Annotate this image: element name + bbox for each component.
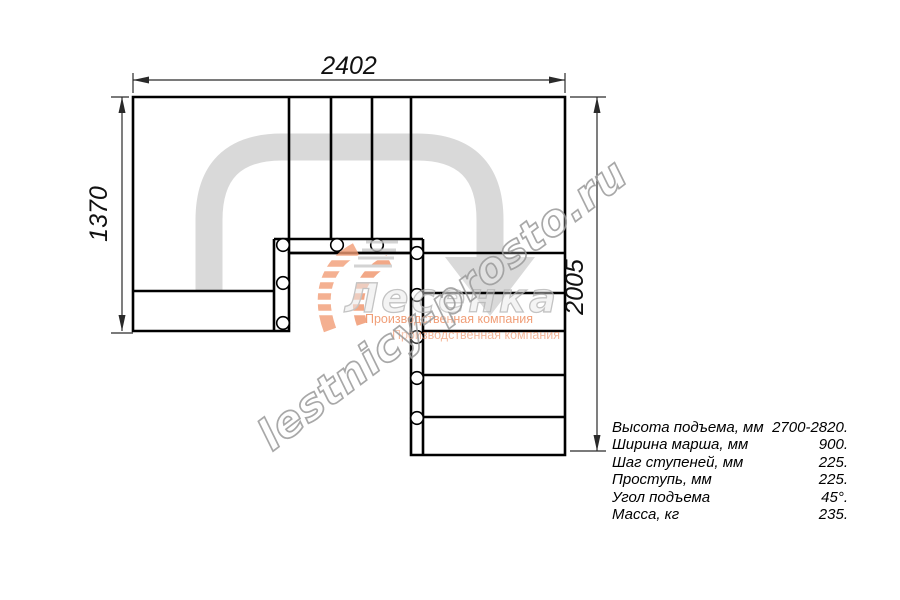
dim-arrow-down-icon (594, 435, 601, 451)
spec-value: 235. (819, 506, 848, 523)
spec-label: Шаг ступеней, мм (612, 454, 743, 471)
dimension-top: 2402 (133, 52, 565, 93)
dim-arrow-up-icon (594, 97, 601, 113)
dimension-right: 2005 (561, 97, 606, 451)
spec-label: Высота подъема, мм (612, 419, 764, 436)
spec-table: Высота подъема, мм 2700-2820. Ширина мар… (612, 419, 848, 523)
spec-row-march-width: Ширина марша, мм 900. (612, 436, 848, 453)
spec-value: 2700-2820. (772, 419, 848, 436)
stair-plan-page: 2402 1370 2005 (0, 0, 900, 600)
spec-row-tread: Проступь, мм 225. (612, 471, 848, 488)
dim-arrow-up-icon (119, 97, 126, 113)
dimension-right-label: 2005 (561, 259, 589, 316)
dim-arrow-left-icon (133, 77, 149, 84)
spec-value: 900. (819, 436, 848, 453)
spec-label: Ширина марша, мм (612, 436, 748, 453)
spec-row-height: Высота подъема, мм 2700-2820. (612, 419, 848, 436)
spec-row-step-pitch: Шаг ступеней, мм 225. (612, 454, 848, 471)
spec-label: Проступь, мм (612, 471, 712, 488)
spec-label: Масса, кг (612, 506, 679, 523)
dim-arrow-down-icon (119, 315, 126, 331)
dimension-left-label: 1370 (85, 186, 113, 242)
spec-row-mass: Масса, кг 235. (612, 506, 848, 523)
spec-value: 225. (819, 471, 848, 488)
spec-label: Угол подъема (612, 489, 710, 506)
spec-value: 225. (819, 454, 848, 471)
spec-value: 45°. (821, 489, 848, 506)
spec-row-angle: Угол подъема 45°. (612, 489, 848, 506)
dimension-left: 1370 (85, 97, 133, 333)
dim-arrow-right-icon (549, 77, 565, 84)
dimension-top-label: 2402 (320, 52, 377, 80)
